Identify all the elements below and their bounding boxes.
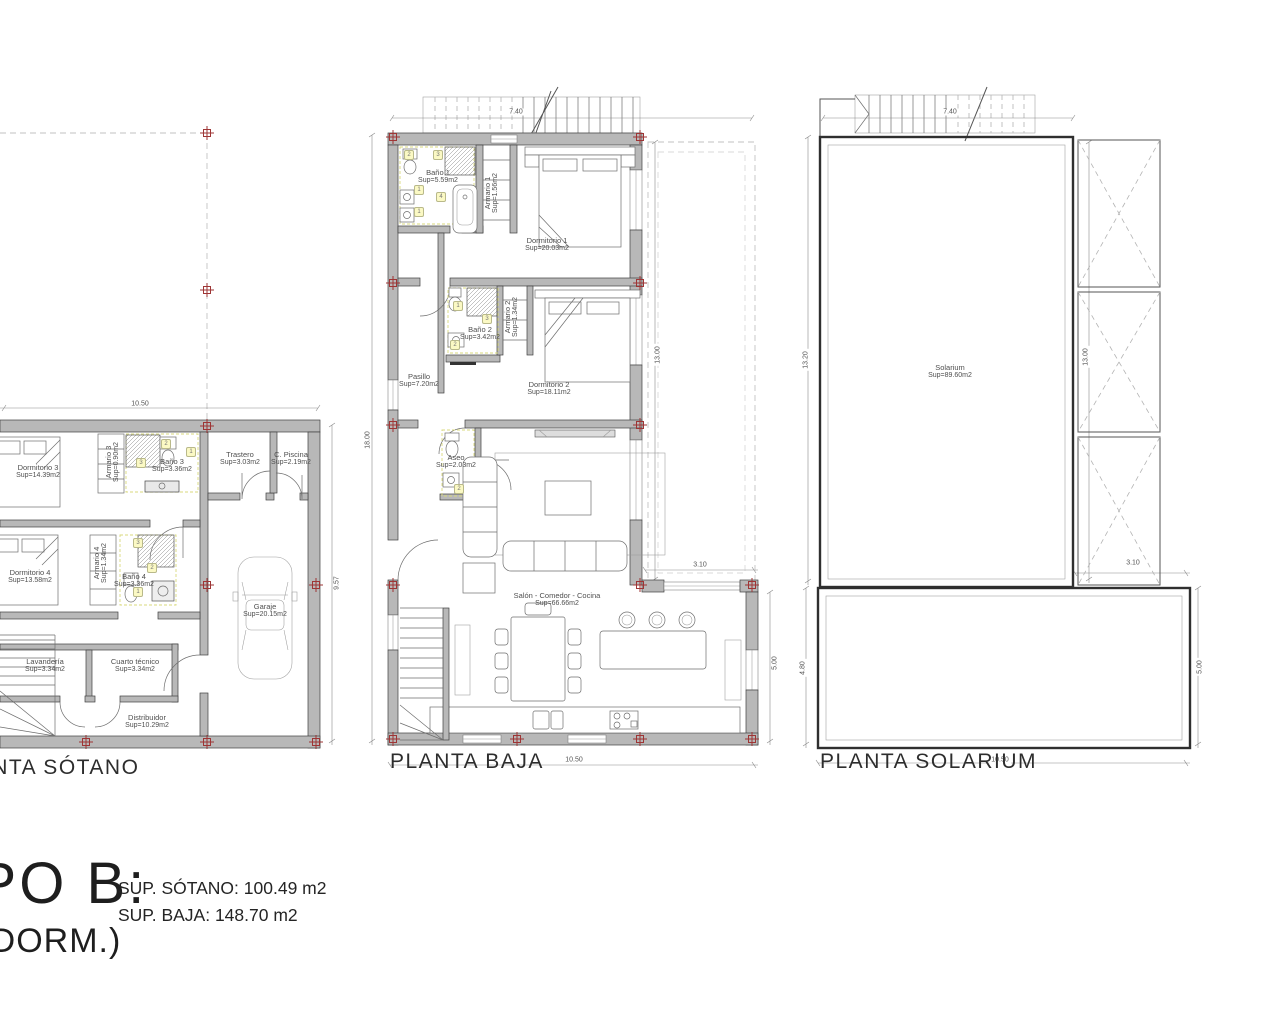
room-label-bano2: Baño 2 Sup=3.42m2 [460,325,500,343]
fixture-badge: 2 [454,484,464,494]
sup-baja-text: SUP. BAJA: 148.70 m2 [118,905,298,926]
dim-solarium-width-top: 7.40 [941,109,959,116]
fixture-badge: 1 [186,447,196,457]
room-label-armario2: Armario 2 Sup=1.34m2 [503,297,521,337]
room-label-lavanderia: Lavandería Sup=3.34m2 [25,657,65,675]
room-label-armario3: Armario 3 Sup=0.90m2 [104,442,122,482]
dim-sotano-width-top: 10.50 [129,401,151,408]
fixture-badge: 2 [450,340,460,350]
fixture-badge: 3 [136,458,146,468]
dim-baja-width-top: 7.40 [507,109,525,116]
fixture-badge: 3 [433,150,443,160]
plan-title-sotano: PLANTA SÓTANO [0,756,139,780]
planta-solarium-drawing [795,85,1235,785]
dorm-count-label: (4 DORM.) [0,922,121,961]
room-label-dormitorio4: Dormitorio 4 Sup=13.58m2 [8,568,52,586]
room-label-aseo: Aseo Sup=2.03m2 [436,453,476,471]
fixture-badge: 1 [453,301,463,311]
fixture-badge: 3 [133,538,143,548]
dim-baja-width-bottom: 10.50 [563,757,585,764]
room-label-dormitorio3: Dormitorio 3 Sup=14.39m2 [16,463,60,481]
fixture-badge: 1 [414,207,424,217]
sup-sotano-text: SUP. SÓTANO: 100.49 m2 [118,878,326,899]
plan-title-baja: PLANTA BAJA [390,750,544,774]
dim-solarium-terrace-height-left: 4.80 [800,659,807,677]
dim-baja-height-left: 18.00 [365,429,372,451]
room-label-cuartotecnico: Cuarto técnico Sup=3.34m2 [111,657,159,675]
room-label-pasillo: Pasillo Sup=7.20m2 [399,372,439,390]
room-label-solarium: Solarium Sup=89.60m2 [928,363,972,381]
room-label-cpiscina: C. Piscina Sup=2.19m2 [271,450,311,468]
room-label-dormitorio2: Dormitorio 2 Sup=18.11m2 [527,380,570,398]
room-label-garaje: Garaje Sup=20.15m2 [243,602,287,620]
dim-solarium-terrace-width: 3.10 [1124,560,1142,567]
fixture-badge: 3 [482,314,492,324]
planta-sotano-drawing [0,95,350,795]
fixture-badge: 1 [414,185,424,195]
plan-title-solarium: PLANTA SOLARIUM [820,750,1037,774]
dim-sotano-height-right: 9.57 [334,574,341,592]
dim-baja-wing-width: 3.10 [691,562,709,569]
dim-baja-wing-height: 5.00 [772,654,779,672]
room-label-armario1: Armario 1 Sup=1.56m2 [483,173,501,213]
fixture-badge: 2 [161,439,171,449]
fixture-badge: 1 [133,587,143,597]
room-label-armario4: Armario 4 Sup=1.34m2 [92,543,110,583]
room-label-bano3: Baño 3 Sup=3.36m2 [152,457,192,475]
room-label-trastero: Trastero Sup=3.03m2 [220,450,260,468]
fixture-badge: 4 [436,192,446,202]
room-label-distribuidor: Distribuidor Sup=10.29m2 [125,713,169,731]
fixture-badge: 2 [404,150,414,160]
floorplan-sheet: Dormitorio 3 Sup=14.39m2 Armario 3 Sup=0… [0,0,1280,1024]
dim-solarium-height-left: 13.20 [803,349,810,371]
dim-solarium-height-inner: 13.00 [1083,346,1090,368]
dim-solarium-terrace-height-right: 5.00 [1197,658,1204,676]
dim-baja-height-right: 13.00 [655,344,662,366]
room-label-dormitorio1: Dormitorio 1 Sup=20.03m2 [525,236,569,254]
room-label-bano1: Baño 1 Sup=5.59m2 [418,168,458,186]
fixture-badge: 2 [147,563,157,573]
room-label-salon: Salón - Comedor - Cocina Sup=66.66m2 [514,591,601,609]
